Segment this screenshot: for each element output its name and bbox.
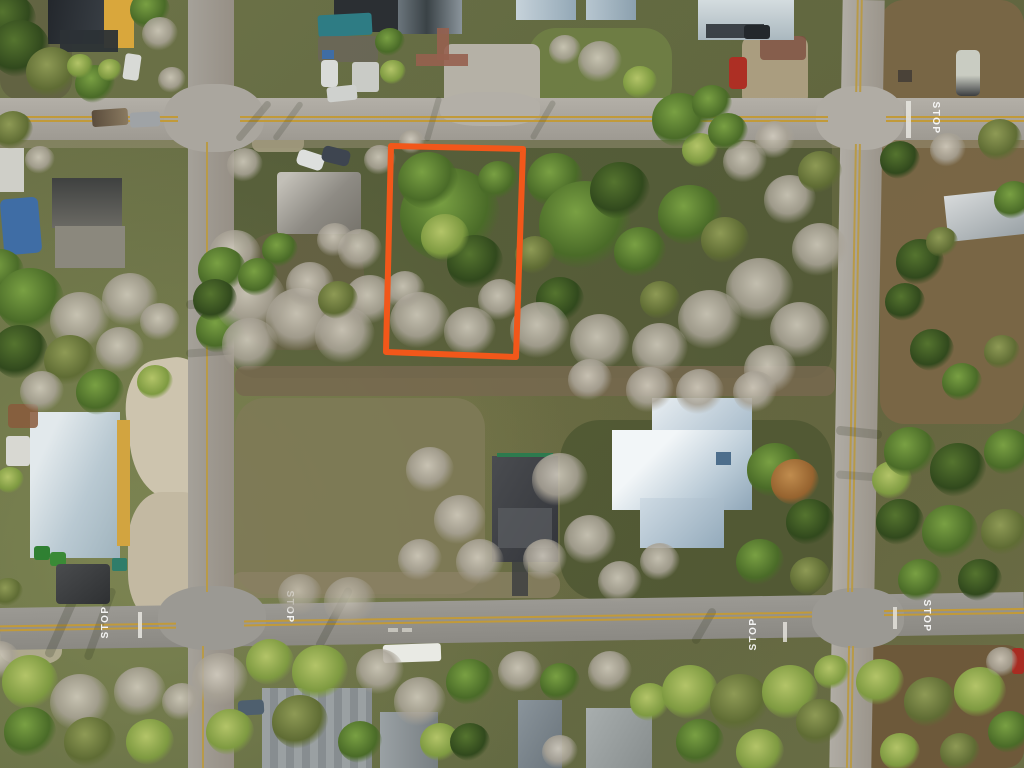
aerial-photo: STOPSTOPSTOPSTOPSTOP [0,0,1024,768]
lot-boundary-polygon [386,146,523,357]
lot-outline [0,0,1024,768]
